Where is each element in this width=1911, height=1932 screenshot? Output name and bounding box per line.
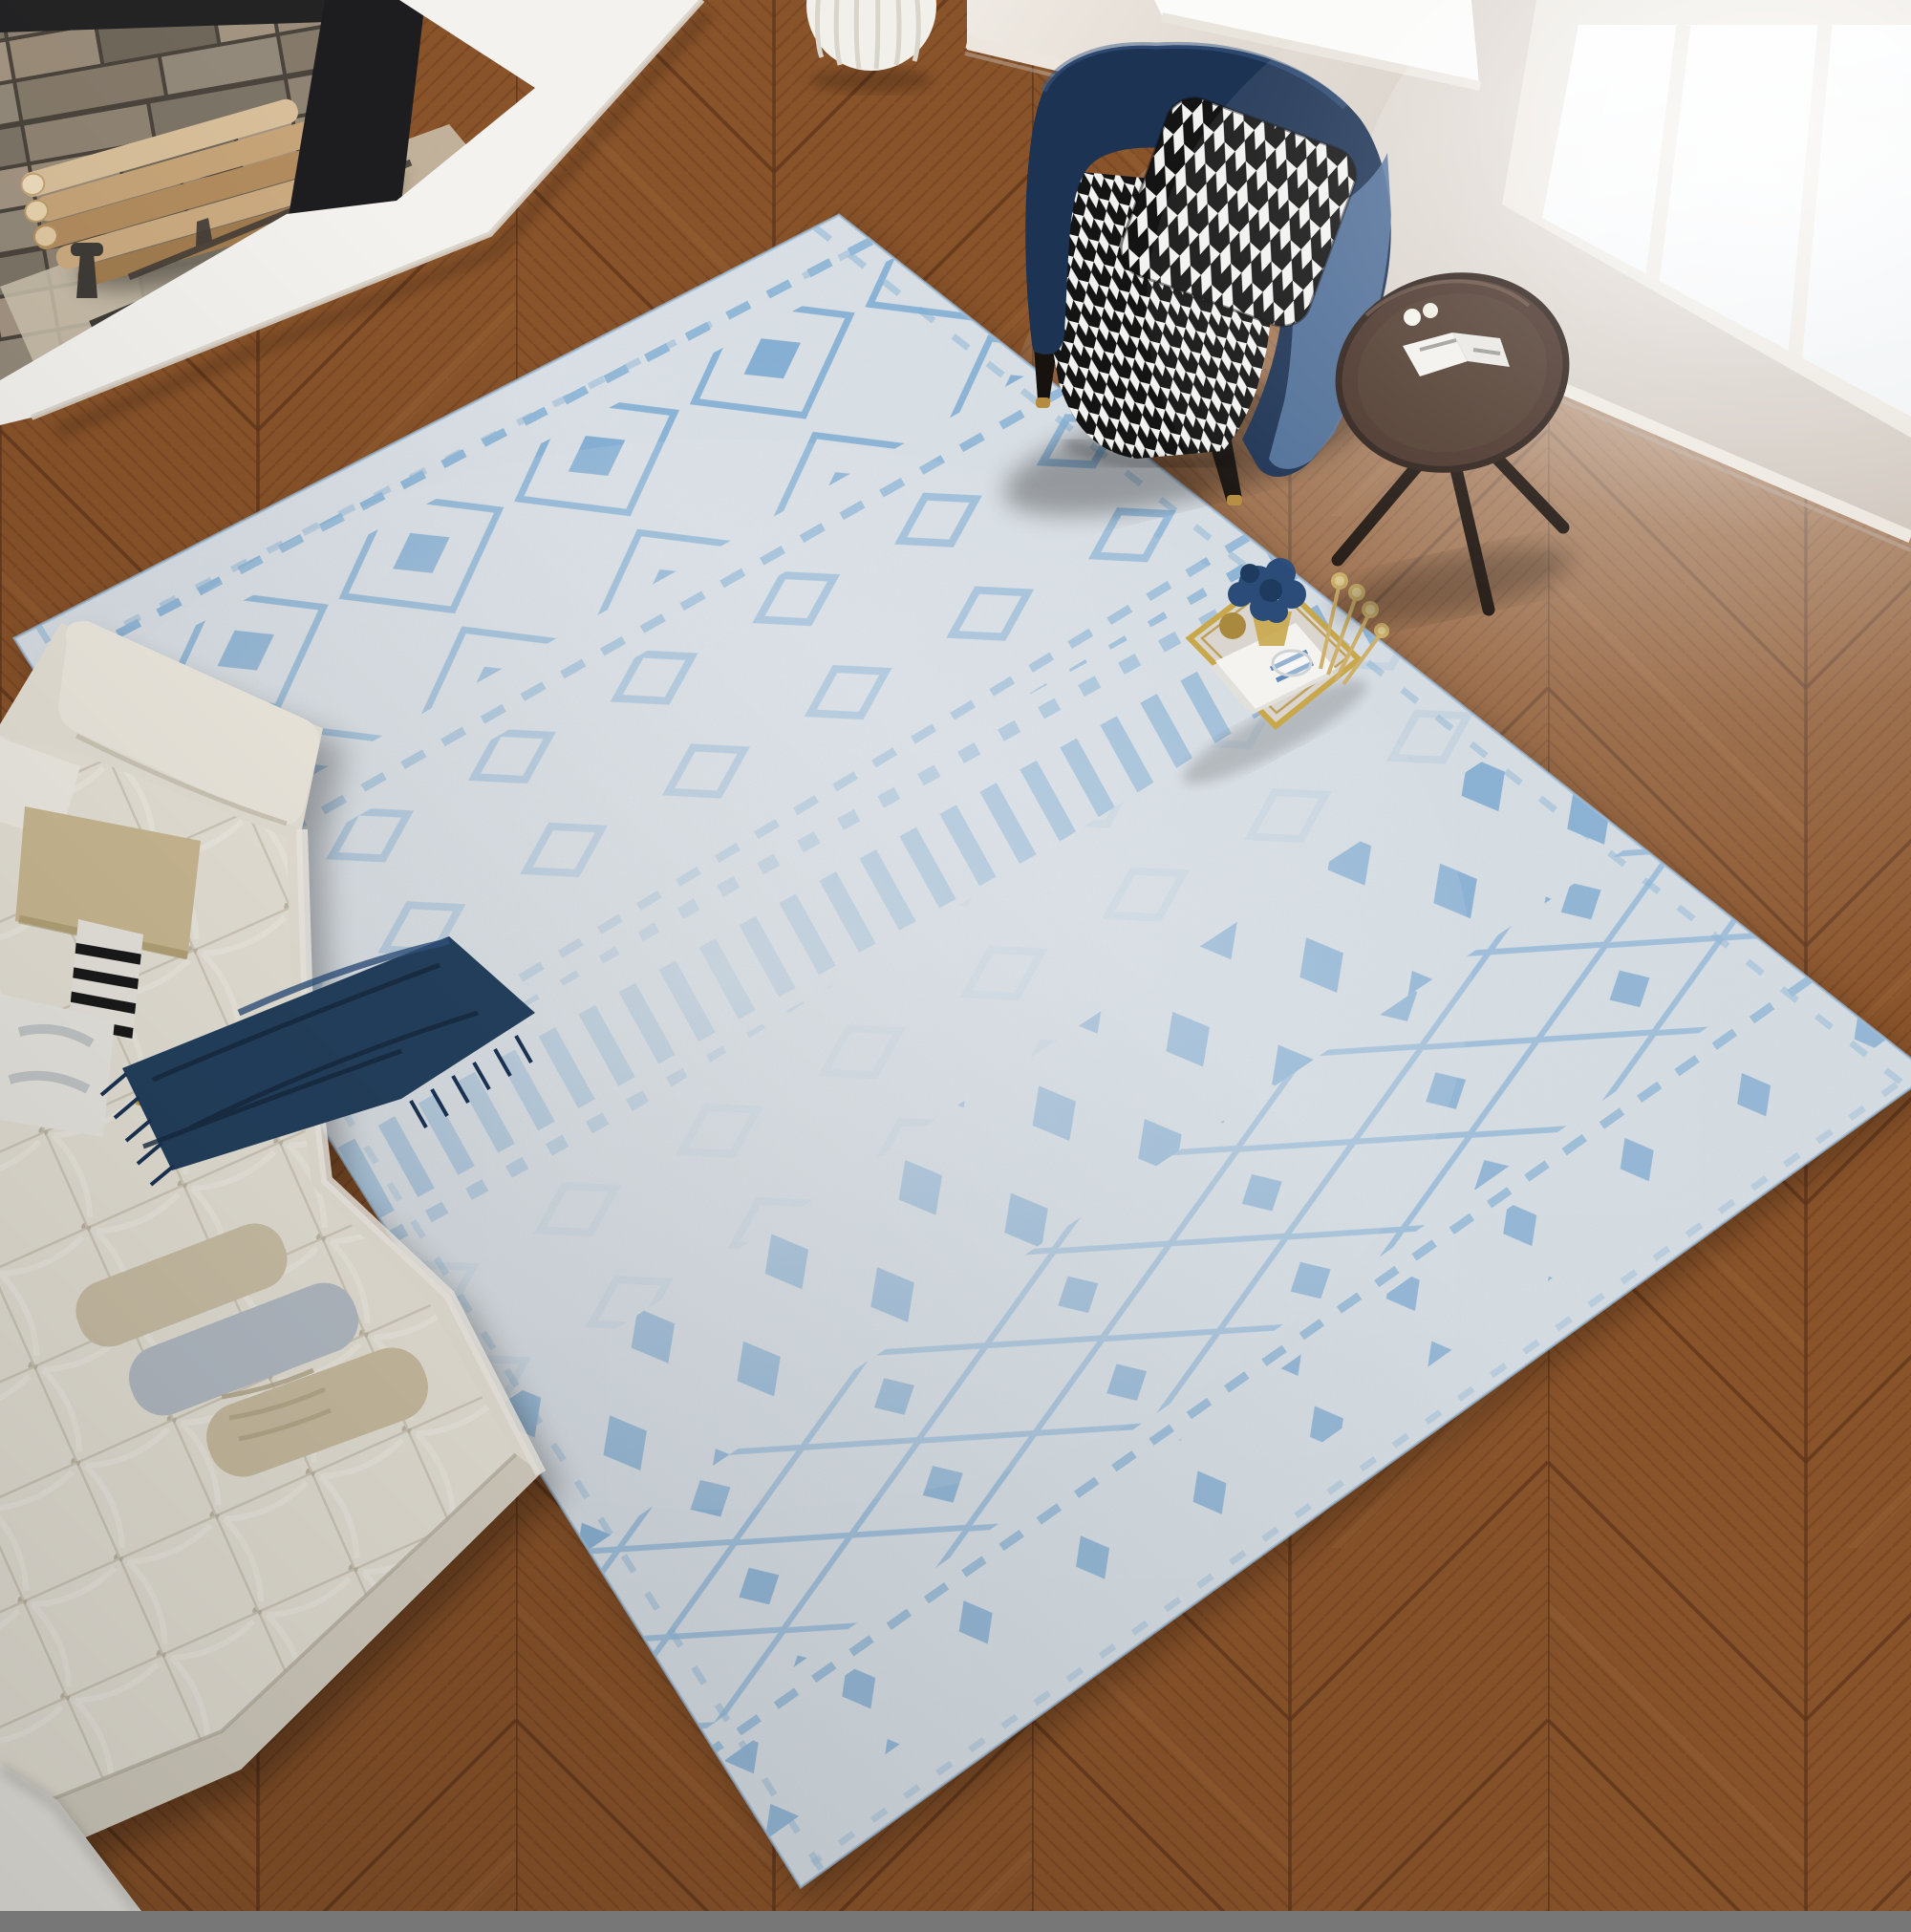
living-room-photo: Top-down living room photo: light blue M… <box>0 0 1911 1911</box>
